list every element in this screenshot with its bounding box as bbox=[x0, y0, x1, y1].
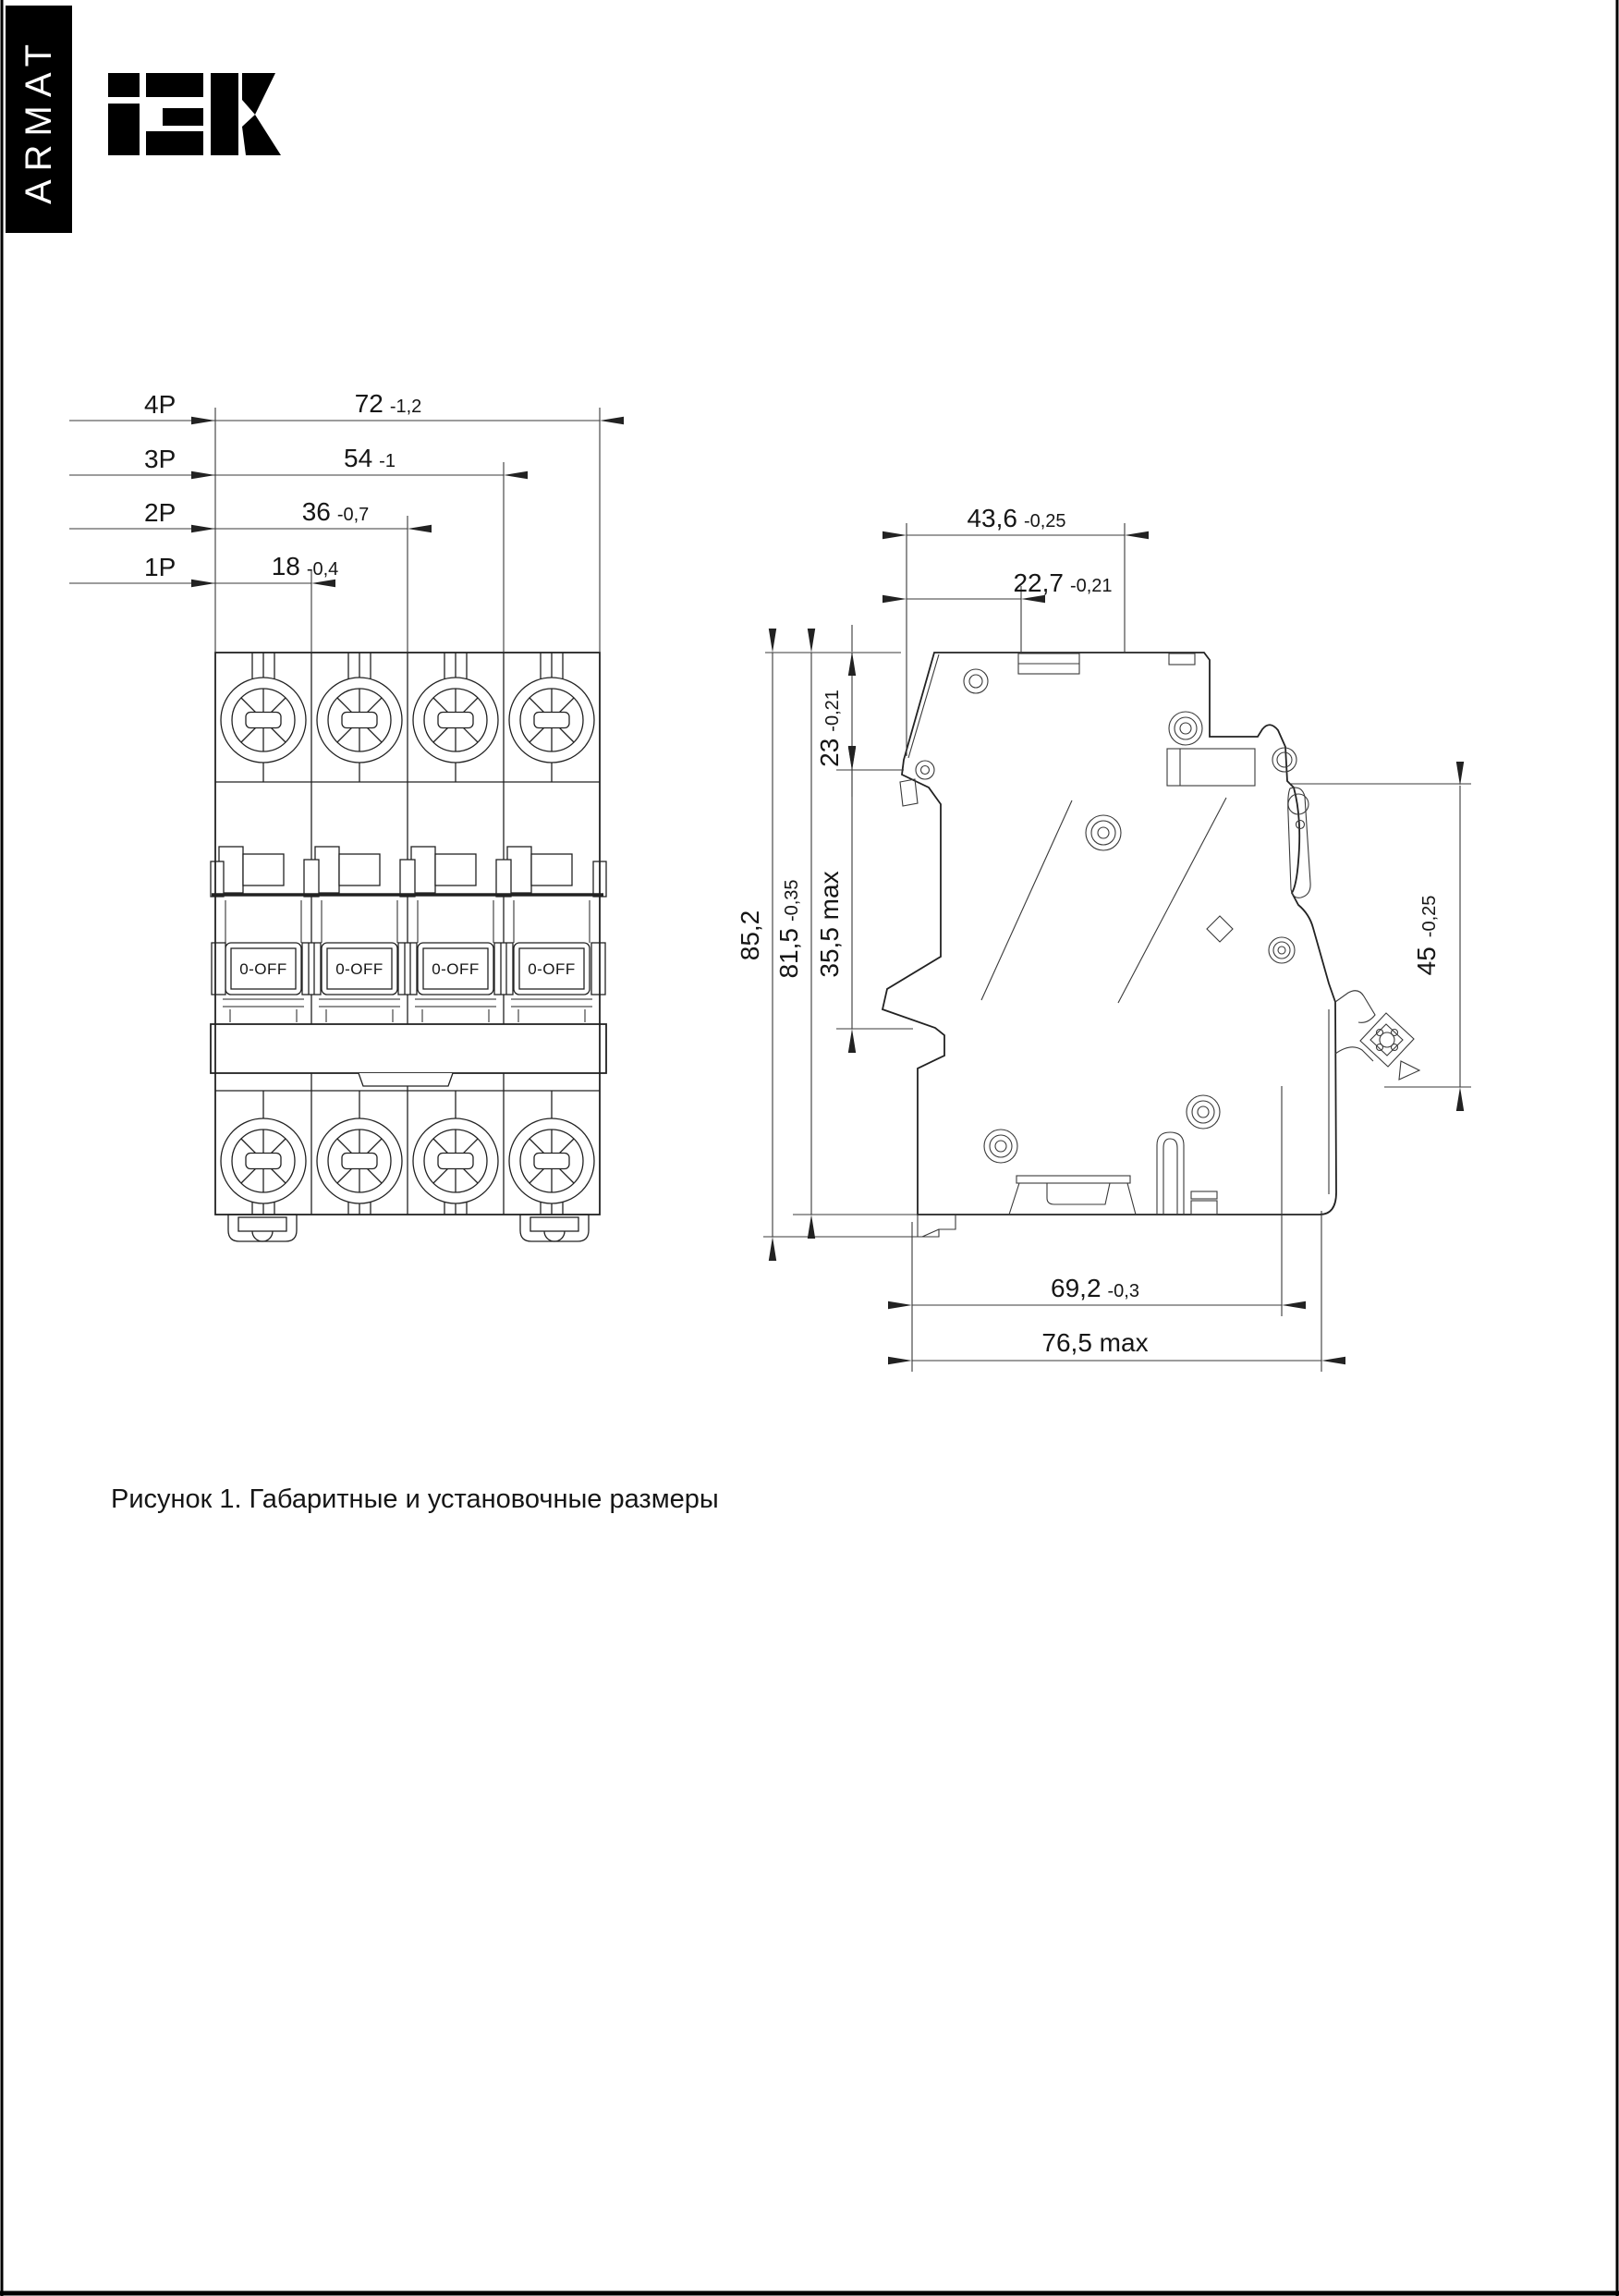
pole-label-4p: 4P bbox=[144, 390, 176, 419]
dim-width-total: 43,6-0,25 bbox=[967, 504, 1065, 532]
pole-label-1p: 1P bbox=[144, 553, 176, 581]
dim-height-overall: 85,2 bbox=[736, 910, 764, 961]
dim-depth-total: 76,5 max bbox=[1041, 1328, 1148, 1357]
toggle-handles: 0-OFF 0-OFF 0-OFF 0-OFF bbox=[212, 943, 605, 995]
dim-depth-body: 69,2-0,3 bbox=[1051, 1274, 1139, 1302]
front-dimensions: 4P 3P 2P 1P 72-1,2 54-1 36-0,7 18-0,4 bbox=[69, 389, 600, 653]
toggle-label-4: 0-OFF bbox=[528, 960, 576, 978]
dim-width-4p: 72-1,2 bbox=[355, 389, 422, 418]
sidebar-label: ARMAT bbox=[18, 36, 59, 204]
figure-caption: Рисунок 1. Габаритные и установочные раз… bbox=[111, 1484, 719, 1514]
rear-clamp-detail bbox=[1335, 991, 1419, 1080]
side-dimensions: 43,6-0,25 22,7-0,21 69,2-0,3 76,5 max 85… bbox=[736, 504, 1471, 1372]
side-rivets bbox=[916, 669, 1296, 1163]
sidebar-banner: ARMAT bbox=[6, 6, 72, 233]
dim-width-front: 22,7-0,21 bbox=[1013, 568, 1112, 597]
dim-top-recess: 23-0,21 bbox=[815, 690, 844, 767]
side-view-drawing bbox=[883, 653, 1419, 1237]
side-details bbox=[900, 653, 1329, 1237]
dim-height-body: 81,5-0,35 bbox=[774, 879, 803, 978]
mid-tabs bbox=[211, 847, 606, 897]
dim-width-1p: 18-0,4 bbox=[272, 552, 339, 580]
toggle-label-3: 0-OFF bbox=[432, 960, 480, 978]
handle-bar bbox=[211, 1024, 606, 1086]
dim-width-3p: 54-1 bbox=[344, 444, 396, 472]
front-feet bbox=[228, 1215, 589, 1241]
pole-label-3p: 3P bbox=[144, 445, 176, 473]
pole-label-2p: 2P bbox=[144, 498, 176, 527]
front-view-drawing: 0-OFF 0-OFF 0-OFF 0-OFF bbox=[211, 653, 606, 1241]
datasheet-page: ARMAT iEK bbox=[0, 0, 1619, 2296]
toggle-label-2: 0-OFF bbox=[335, 960, 383, 978]
dim-width-2p: 36-0,7 bbox=[302, 497, 370, 526]
side-body-outline bbox=[883, 653, 1336, 1215]
dim-din-face: 45-0,25 bbox=[1412, 896, 1441, 976]
iek-logo: iEK bbox=[108, 73, 281, 155]
dim-handle: 35,5 max bbox=[815, 871, 844, 977]
toggle-label-1: 0-OFF bbox=[239, 960, 287, 978]
